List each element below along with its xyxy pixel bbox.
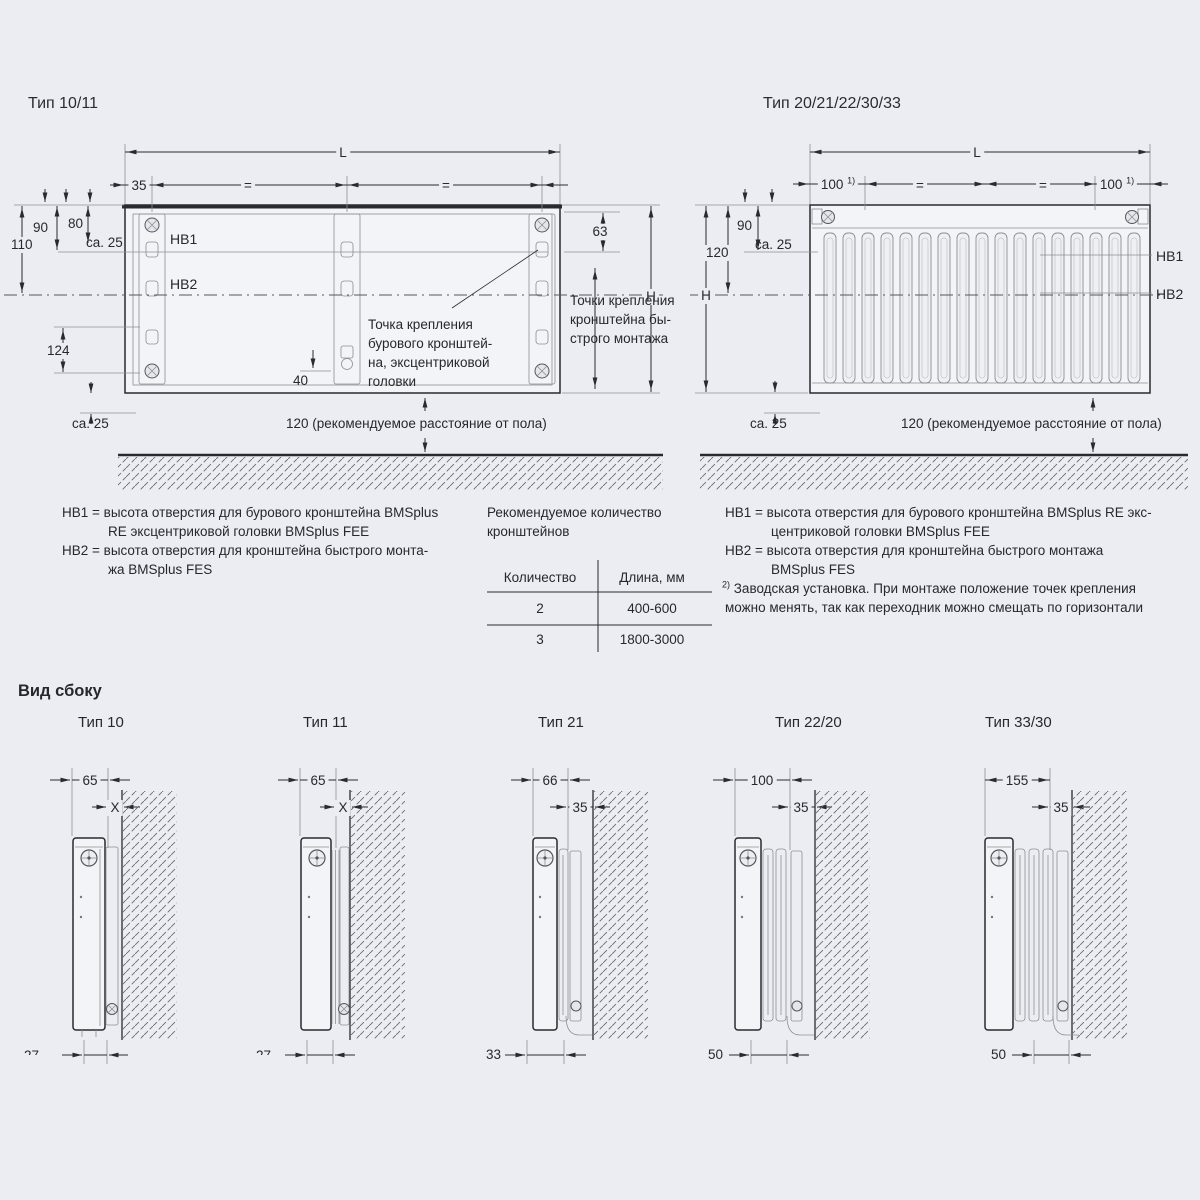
dim-110: 110 <box>8 237 36 253</box>
bottom-dim-type21: 33 <box>486 1047 501 1063</box>
label-hb1-left: HB1 <box>170 231 197 248</box>
table-row2-length: 1800-3000 <box>620 632 685 648</box>
dim-L-right: L <box>970 145 984 161</box>
diagram-title-type1011: Тип 10/11 <box>28 95 98 114</box>
bottom-dim-type10: 27 <box>24 1048 39 1055</box>
dim-equal-4: = <box>1036 178 1050 194</box>
offset-dim-type21: 35 <box>569 800 590 816</box>
depth-dim-type10: 65 <box>79 773 100 789</box>
dim-35: 35 <box>128 178 149 194</box>
dim-H-right: H <box>698 288 714 304</box>
footnote-ref-2: 1) <box>1126 176 1134 186</box>
side-view-title-type11: Тип 11 <box>303 714 348 732</box>
dim-equal-2: = <box>439 178 453 194</box>
side-view-title-type2220: Тип 22/20 <box>775 714 842 732</box>
side-view-header: Вид сбоку <box>18 682 102 701</box>
legend-right-hb2-line1: HB2 = высота отверстия для кронштейна бы… <box>725 543 1103 559</box>
legend-left-hb2-line1: HB2 = высота отверстия для кронштейна бы… <box>62 543 428 559</box>
legend-footnote-line1: 2) Заводская установка. При монтаже поло… <box>722 581 1136 597</box>
depth-dim-type21: 66 <box>539 773 560 789</box>
dim-80: 80 <box>68 216 83 232</box>
legend-left-hb2-line2: жа BMSplus FES <box>108 562 212 578</box>
legend-right-hb2-line2: BMSplus FES <box>771 562 855 578</box>
legend-right-hb1-line1: HB1 = высота отверстия для бурового крон… <box>725 505 1152 521</box>
side-view-title-type10: Тип 10 <box>78 714 124 732</box>
floor-distance-note-left: 120 (рекомендуемое расстояние от пола) <box>283 416 550 432</box>
offset-dim-type3330: 35 <box>1050 800 1071 816</box>
legend-footnote-line2: можно менять, так как переходник можно с… <box>725 600 1143 616</box>
floor-left <box>118 455 663 490</box>
dim-100-left: 100 1) <box>818 177 858 193</box>
legend-left-hb1-line1: HB1 = высота отверстия для бурового крон… <box>62 505 438 521</box>
convector-fins <box>824 233 1140 383</box>
table-header-quantity: Количество <box>504 570 577 586</box>
note-quick-bracket: Точки крепления кронштейна бы- строго мо… <box>570 291 700 348</box>
table-caption-line2: кронштейнов <box>487 524 569 540</box>
offset-dim-type10: X <box>107 800 122 816</box>
table-row2-quantity: 3 <box>536 632 544 648</box>
dim-100-right-value: 100 <box>1100 177 1123 192</box>
bottom-dim-type10-clipped: 27 <box>24 1047 50 1055</box>
table-row1-length: 400-600 <box>627 601 677 617</box>
table-row1-quantity: 2 <box>536 601 544 617</box>
floor-distance-note-right: 120 (рекомендуемое расстояние от пола) <box>898 416 1165 432</box>
dim-ca25-bottom-left: ca. 25 <box>72 416 109 432</box>
bottom-dim-type3330: 50 <box>991 1047 1006 1063</box>
legend-left-hb1-line2: RE эксцентриковой головки BMSplus FEE <box>108 524 369 540</box>
side-view-title-type3330: Тип 33/30 <box>985 714 1052 732</box>
label-h2b-right: HB2 <box>1156 286 1183 303</box>
label-hb1-right: HB1 <box>1156 248 1183 265</box>
depth-dim-type3330: 155 <box>1003 773 1032 789</box>
dim-90-left: 90 <box>33 220 48 236</box>
type2033-radiator-body <box>810 205 1150 393</box>
bottom-dim-type11: 27 <box>256 1048 271 1055</box>
offset-dim-type2220: 35 <box>790 800 811 816</box>
bottom-dim-type2220: 50 <box>708 1047 723 1063</box>
dim-100-right: 100 1) <box>1097 177 1137 193</box>
footnote-ref-1: 1) <box>847 176 855 186</box>
dim-40: 40 <box>293 373 308 389</box>
dim-124: 124 <box>44 343 73 359</box>
dim-equal-1: = <box>241 178 255 194</box>
legend-right-hb1-line2: центриковой головки BMSplus FEE <box>771 524 990 540</box>
footnote-text-line1: Заводская установка. При монтаже положен… <box>734 581 1136 596</box>
dim-63: 63 <box>589 224 610 240</box>
dim-100-left-value: 100 <box>821 177 844 192</box>
note-drill-bracket: Точка крепления бурового кронштей- на, э… <box>368 315 528 392</box>
dim-equal-3: = <box>913 178 927 194</box>
table-caption-line1: Рекомендуемое количество <box>487 505 661 521</box>
label-hb2-left: HB2 <box>170 276 197 293</box>
side-view-title-type21: Тип 21 <box>538 714 584 732</box>
dim-ca25-top-right: ca. 25 <box>755 237 792 253</box>
offset-dim-type11: X <box>335 800 350 816</box>
depth-dim-type2220: 100 <box>748 773 777 789</box>
table-header-length: Длина, мм <box>619 570 685 586</box>
floor-right <box>700 455 1188 490</box>
depth-dim-type11: 65 <box>307 773 328 789</box>
footnote-mark: 2) <box>722 580 730 590</box>
dim-90-right: 90 <box>737 218 752 234</box>
dim-L-left: L <box>336 145 350 161</box>
bottom-dim-type11-clipped: 27 <box>256 1047 282 1055</box>
dim-ca25-bottom-right: ca. 25 <box>750 416 787 432</box>
dim-ca25-top-left: ca. 25 <box>86 235 123 251</box>
diagram-title-type2033: Тип 20/21/22/30/33 <box>763 95 901 114</box>
dim-120: 120 <box>703 245 732 261</box>
radiator-mounting-diagram: Тип 10/11 L 35 = = 90 80 110 ca. 25 HB1 … <box>0 0 1200 1200</box>
